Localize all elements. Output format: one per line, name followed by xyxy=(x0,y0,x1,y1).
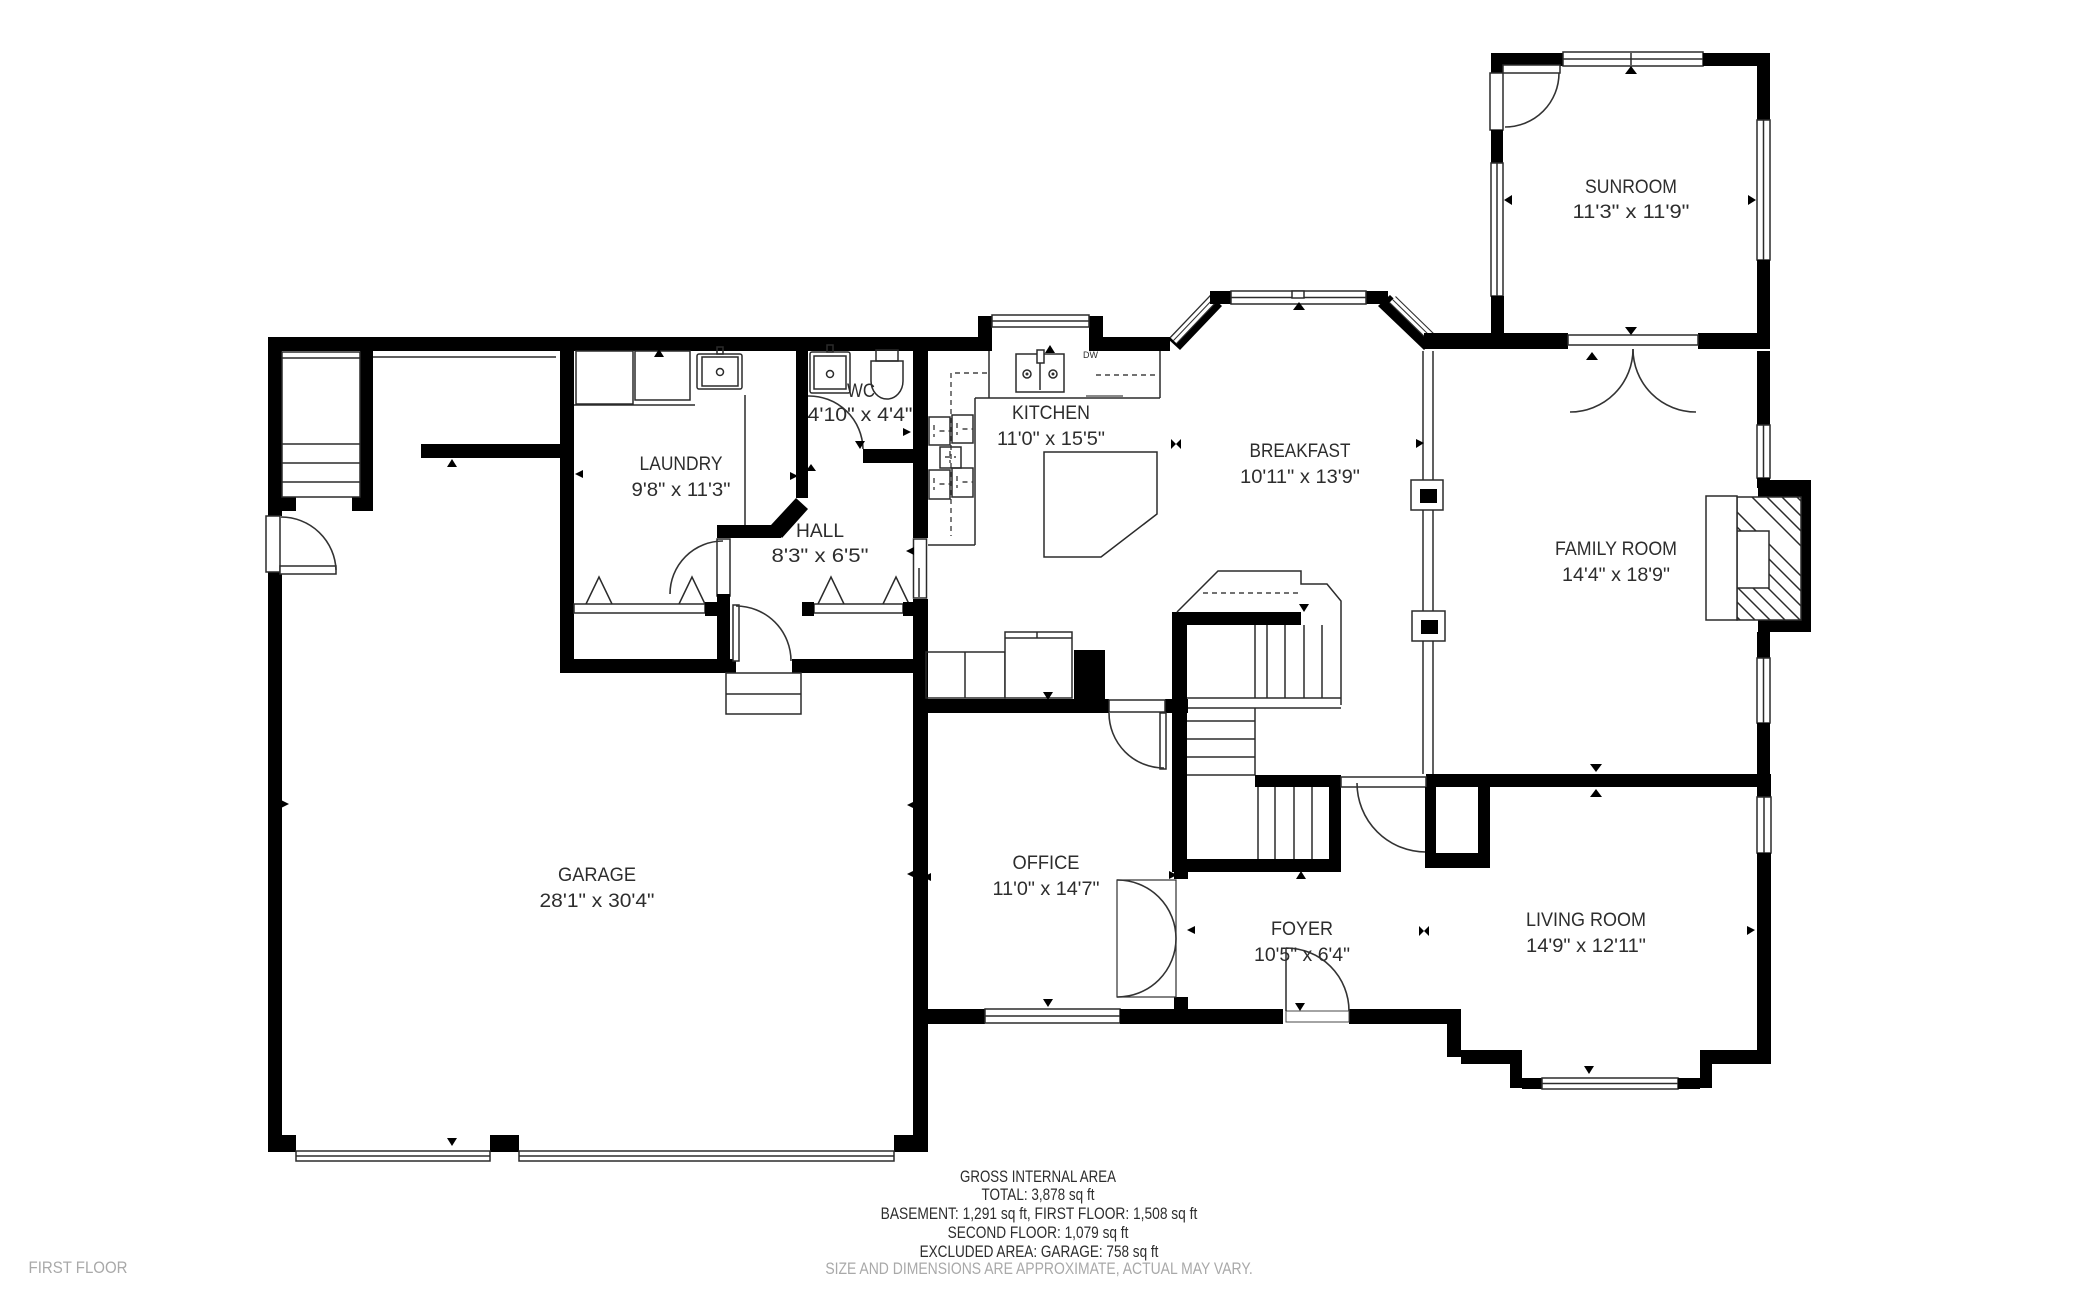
svg-text:14'4" x 18'9": 14'4" x 18'9" xyxy=(1562,564,1670,586)
svg-text:OFFICE: OFFICE xyxy=(1013,852,1080,873)
svg-text:BASEMENT: 1,291 sq ft, FIRST F: BASEMENT: 1,291 sq ft, FIRST FLOOR: 1,50… xyxy=(881,1205,1198,1223)
svg-text:SUNROOM: SUNROOM xyxy=(1585,175,1677,197)
svg-text:14'9" x 12'11": 14'9" x 12'11" xyxy=(1526,935,1646,956)
svg-text:WC: WC xyxy=(847,380,875,401)
svg-text:GARAGE: GARAGE xyxy=(558,864,636,885)
svg-text:SIZE AND DIMENSIONS ARE APPROX: SIZE AND DIMENSIONS ARE APPROXIMATE, ACT… xyxy=(825,1260,1252,1278)
svg-text:10'5" x 6'4": 10'5" x 6'4" xyxy=(1254,945,1350,966)
svg-text:HALL: HALL xyxy=(796,521,844,542)
svg-text:10'11" x 13'9": 10'11" x 13'9" xyxy=(1240,466,1360,487)
svg-text:DW: DW xyxy=(1083,350,1098,360)
svg-text:LAUNDRY: LAUNDRY xyxy=(640,452,723,474)
svg-text:11'3" x 11'9": 11'3" x 11'9" xyxy=(1573,201,1690,222)
svg-text:28'1" x 30'4": 28'1" x 30'4" xyxy=(540,891,655,912)
svg-text:GROSS INTERNAL AREA: GROSS INTERNAL AREA xyxy=(960,1168,1116,1187)
svg-text:11'0" x 15'5": 11'0" x 15'5" xyxy=(997,428,1105,449)
svg-text:9'8" x 11'3": 9'8" x 11'3" xyxy=(632,480,731,501)
svg-text:4'10" x 4'4": 4'10" x 4'4" xyxy=(808,405,913,426)
svg-text:FIRST FLOOR: FIRST FLOOR xyxy=(29,1259,128,1277)
svg-text:SECOND FLOOR: 1,079 sq ft: SECOND FLOOR: 1,079 sq ft xyxy=(948,1224,1130,1243)
svg-text:BREAKFAST: BREAKFAST xyxy=(1250,440,1351,461)
svg-text:EXCLUDED AREA: GARAGE: 758 sq: EXCLUDED AREA: GARAGE: 758 sq ft xyxy=(920,1243,1160,1262)
svg-text:KITCHEN: KITCHEN xyxy=(1012,401,1090,423)
svg-text:TOTAL: 3,878 sq ft: TOTAL: 3,878 sq ft xyxy=(982,1186,1096,1205)
svg-text:FAMILY ROOM: FAMILY ROOM xyxy=(1555,537,1677,559)
svg-text:LIVING ROOM: LIVING ROOM xyxy=(1526,909,1646,931)
svg-text:11'0" x 14'7": 11'0" x 14'7" xyxy=(993,878,1100,900)
svg-text:FOYER: FOYER xyxy=(1271,918,1333,940)
svg-text:8'3" x 6'5": 8'3" x 6'5" xyxy=(772,545,869,566)
